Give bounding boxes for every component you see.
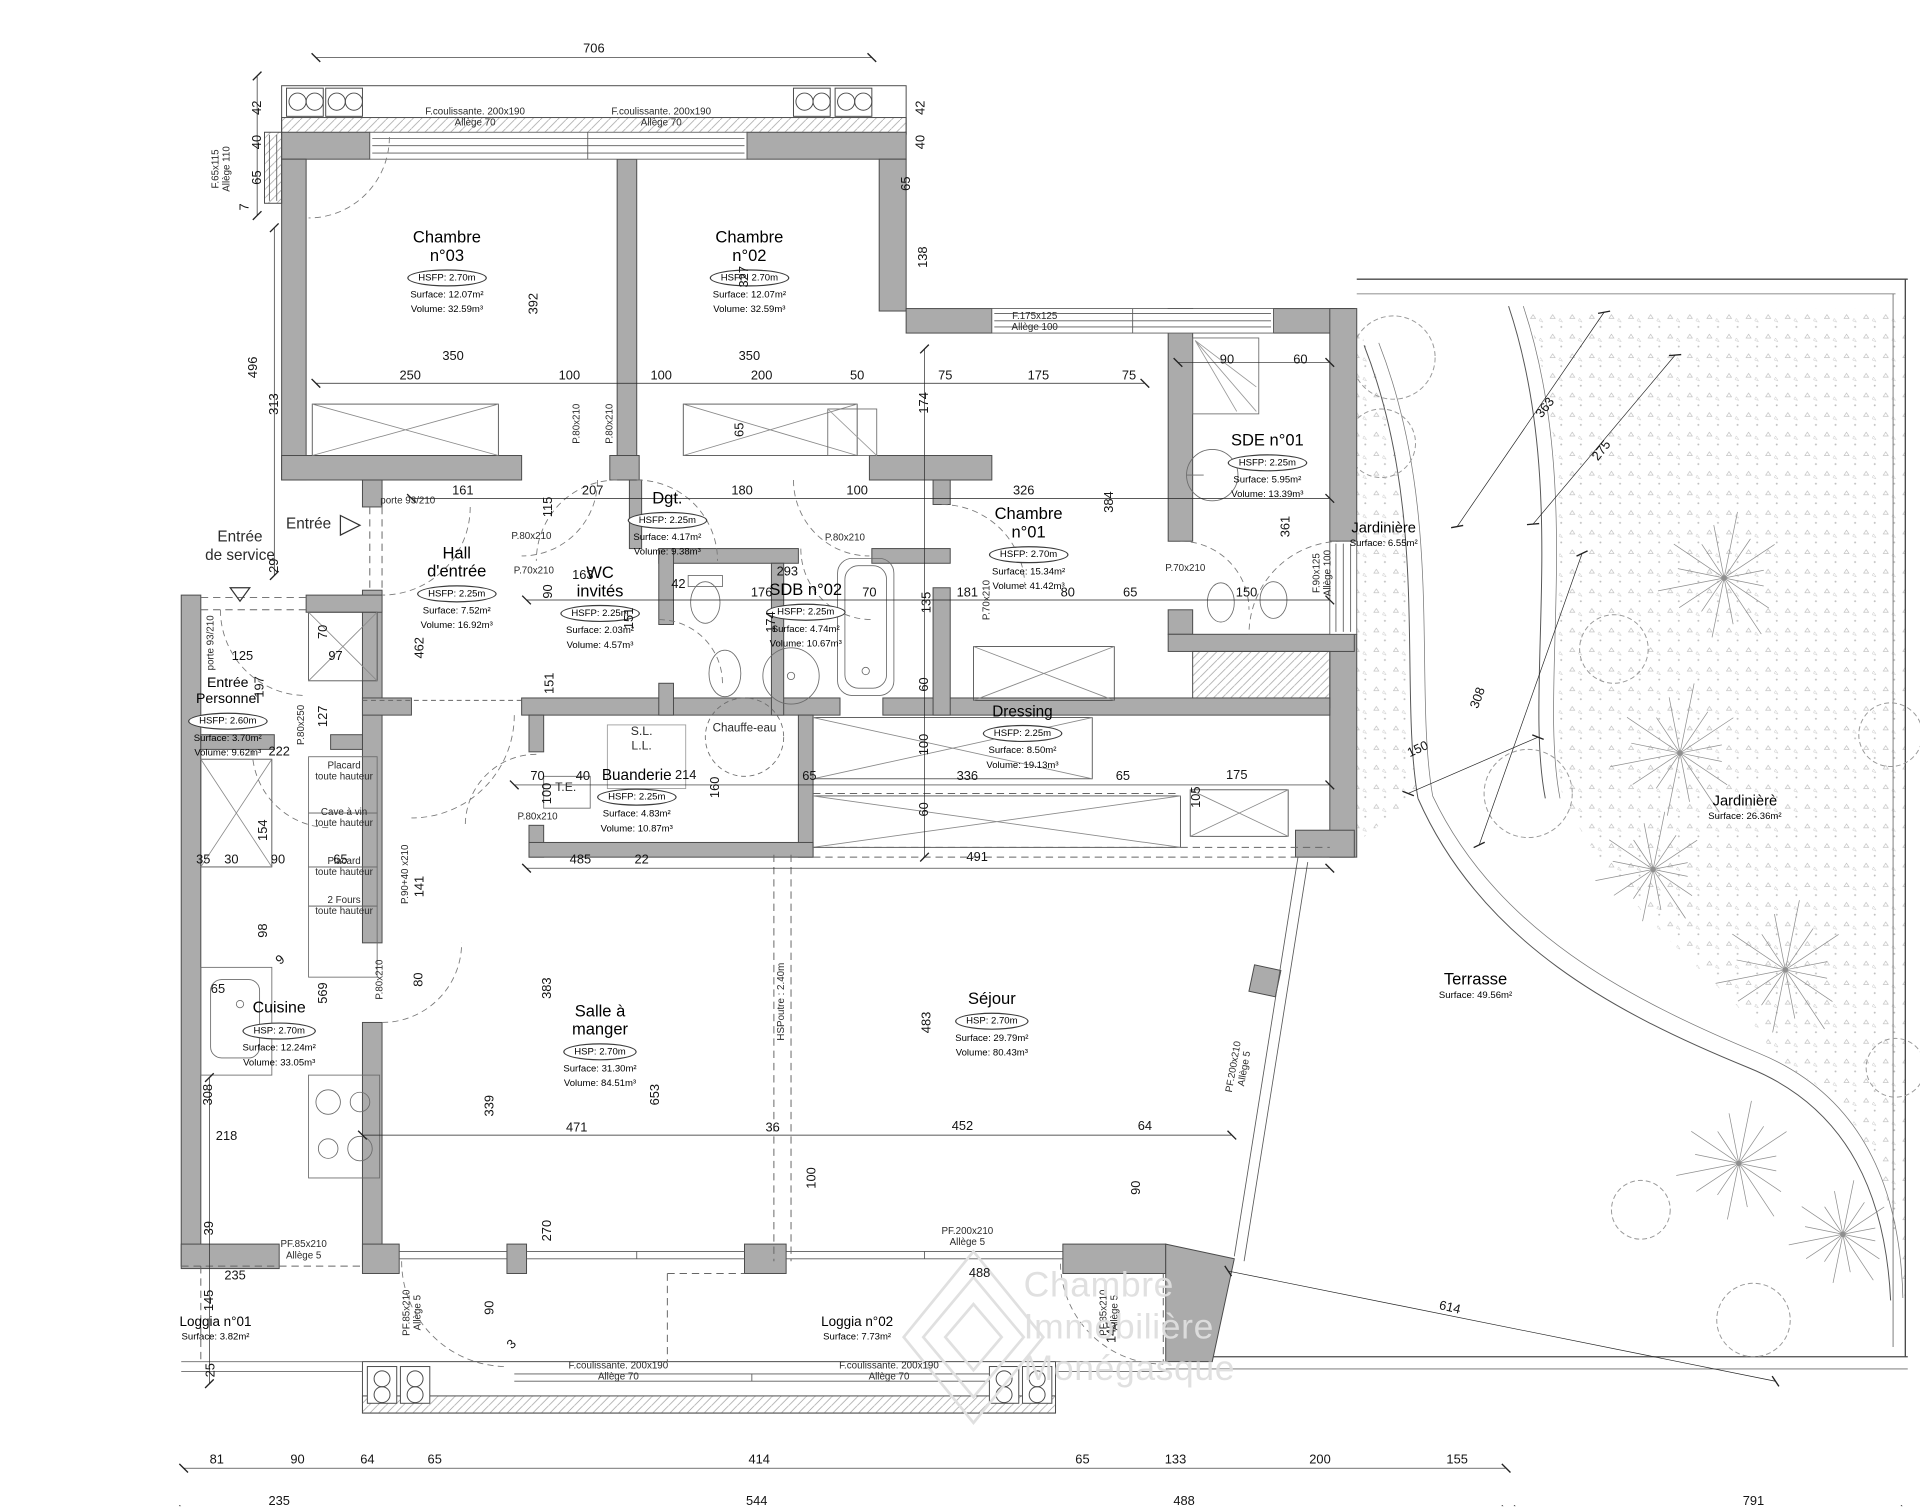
dimension-label: 706 — [583, 42, 604, 57]
room-label: CuisineHSP: 2.70mSurface: 12.24m²Volume:… — [242, 999, 316, 1070]
room-label: JardinièreSurface: 6.55m² — [1350, 520, 1418, 551]
dimension-label: 350 — [442, 349, 463, 364]
room-surface: Surface: 6.55m² — [1350, 537, 1418, 552]
dimension-label: 42 — [250, 101, 265, 115]
annotation-label: PF.85x210 Allège 5 — [401, 1290, 424, 1336]
annotation-label: S.L. L.L. — [631, 725, 653, 754]
dimension-label: 50 — [850, 369, 864, 384]
room-surface: Surface: 15.34m² — [989, 565, 1068, 580]
dimension-label: 150 — [1405, 738, 1431, 760]
watermark: Chambre Immobilière Monégasque — [1024, 1266, 1235, 1391]
dimension-label: 488 — [1173, 1494, 1194, 1509]
dimension-label: 97 — [328, 649, 342, 664]
dimension-label: 326 — [1013, 484, 1034, 499]
dimension-label: 40 — [250, 135, 265, 149]
dimension-label: 151 — [542, 673, 557, 694]
annotation-label: PF.200x210 Allège 5 — [1223, 1040, 1255, 1095]
room-volume: Volume: 32.59m³ — [710, 303, 789, 318]
dimension-label: 200 — [751, 369, 772, 384]
dimension-label: 100 — [804, 1167, 819, 1188]
room-label: Chambre n°01HSFP: 2.70mSurface: 15.34m²V… — [989, 504, 1068, 594]
dimension-label: 176 — [751, 585, 772, 600]
annotation-label: F.coulissante. 200x190 Allège 70 — [425, 106, 525, 129]
dimension-label: 462 — [413, 637, 428, 658]
dimension-label: 483 — [920, 1012, 935, 1033]
dimension-label: 90 — [541, 584, 556, 598]
annotation-label: HSPoutre : 2.40m — [775, 963, 787, 1041]
watermark-line: Monégasque — [1024, 1349, 1235, 1391]
dimension-label: 127 — [316, 706, 331, 727]
dimension-label: 65 — [1116, 769, 1130, 784]
room-height-badge: HSP: 2.70m — [563, 1044, 637, 1061]
dimension-label: 64 — [1138, 1119, 1152, 1134]
room-label: BuanderieHSFP: 2.25mSurface: 4.83m²Volum… — [597, 767, 676, 837]
dimension-label: 174 — [764, 611, 779, 632]
room-label: Chambre n°03HSFP: 2.70mSurface: 12.07m²V… — [407, 228, 486, 318]
room-name: Salle à manger — [563, 1002, 637, 1039]
room-surface: Surface: 4.83m² — [597, 807, 676, 822]
room-surface: Surface: 8.50m² — [983, 743, 1062, 758]
dimension-label: 175 — [1028, 369, 1049, 384]
dimension-label: 65 — [802, 769, 816, 784]
dimension-label: 174 — [917, 392, 932, 413]
dimension-label: 235 — [224, 1269, 245, 1284]
dimension-label: 100 — [650, 369, 671, 384]
dimension-label: 141 — [413, 876, 428, 897]
dimension-label: 98 — [256, 923, 271, 937]
room-name: Séjour — [955, 989, 1029, 1008]
dimension-label: 70 — [316, 625, 331, 639]
dimension-label: 81 — [210, 1452, 224, 1467]
dimension-label: 308 — [201, 1084, 216, 1105]
dimension-label: 275 — [1589, 438, 1614, 464]
room-height-badge: HSFP: 2.25m — [983, 725, 1062, 742]
annotation-label: porte 93/210 — [380, 495, 435, 507]
room-surface: Surface: 5.95m² — [1228, 473, 1307, 488]
dimension-label: 222 — [268, 744, 289, 759]
dimension-label: 154 — [256, 819, 271, 840]
room-name: Loggia n°02 — [821, 1315, 893, 1330]
annotation-label: P.90+40 x210 — [400, 845, 412, 904]
dimension-label: 65 — [211, 982, 225, 997]
dimension-label: 653 — [648, 1084, 663, 1105]
room-surface: Surface: 31.30m² — [563, 1062, 637, 1077]
dimension-label: 384 — [1102, 491, 1117, 512]
room-name: Jardinièrè — [1708, 793, 1781, 809]
room-label: Salle à mangerHSP: 2.70mSurface: 31.30m²… — [563, 1002, 637, 1092]
dimension-label: 36 — [766, 1120, 780, 1135]
dimension-label: 569 — [316, 982, 331, 1003]
dimension-label: 138 — [916, 246, 931, 267]
dimension-label: 339 — [482, 1095, 497, 1116]
room-height-badge: HSFP: 2.60m — [188, 712, 267, 729]
dimension-label: 361 — [1278, 516, 1293, 537]
annotation-label: Entrée de service — [205, 528, 275, 564]
dimension-label: 414 — [748, 1452, 769, 1467]
room-label: TerrasseSurface: 49.56m² — [1439, 970, 1512, 1003]
room-volume: Volume: 80.43m³ — [955, 1046, 1029, 1061]
dimension-label: 207 — [582, 484, 603, 499]
labels-layer: Chambre Immobilière Monégasque Chambre n… — [0, 0, 1920, 1506]
dimension-label: 42 — [913, 101, 928, 115]
annotation-label: T.E. — [555, 781, 576, 795]
dimension-label: 383 — [540, 977, 555, 998]
dimension-label: 151 — [622, 608, 637, 629]
dimension-label: 90 — [290, 1452, 304, 1467]
room-height-badge: HSFP: 2.70m — [407, 270, 486, 287]
annotation-label: F.65x115 Allège 110 — [210, 146, 233, 192]
room-volume: Volume: 9.62m³ — [188, 746, 267, 761]
dimension-label: 496 — [246, 357, 261, 378]
watermark-line: Chambre — [1024, 1266, 1235, 1308]
room-surface: Surface: 12.07m² — [710, 288, 789, 303]
room-surface: Surface: 7.73m² — [821, 1330, 893, 1345]
dimension-label: 80 — [1061, 585, 1075, 600]
annotation-label: P.80x210 — [571, 404, 583, 444]
room-volume: Volume: 19.13m³ — [983, 758, 1062, 773]
room-height-badge: HSFP: 2.70m — [989, 546, 1068, 563]
dimension-label: 35 — [196, 852, 210, 867]
room-label: JardinièrèSurface: 26.36m² — [1708, 793, 1781, 824]
dimension-label: 65 — [428, 1452, 442, 1467]
dimension-label: 336 — [957, 769, 978, 784]
room-height-badge: HSFP: 2.25m — [597, 789, 676, 806]
room-label: Loggia n°02Surface: 7.73m² — [821, 1315, 893, 1345]
annotation-label: Placard toute hauteur — [315, 760, 373, 783]
dimension-label: 363 — [1533, 395, 1558, 421]
dimension-label: 145 — [202, 1290, 217, 1311]
dimension-label: 100 — [540, 783, 555, 804]
dimension-label: 125 — [232, 649, 253, 664]
dimension-label: 308 — [1467, 685, 1488, 710]
room-volume: Volume: 9.38m³ — [628, 545, 707, 560]
dimension-label: 40 — [913, 135, 928, 149]
watermark-line: Immobilière — [1024, 1308, 1235, 1350]
dimension-label: 135 — [920, 592, 935, 613]
dimension-label: 327 — [737, 266, 752, 287]
room-label: Hall d'entréeHSFP: 2.25mSurface: 7.52m²V… — [417, 544, 496, 634]
room-volume: Volume: 84.51m³ — [563, 1077, 637, 1092]
annotation-label: P.80x210 — [511, 531, 551, 543]
dimension-label: 133 — [1165, 1452, 1186, 1467]
dimension-label: 155 — [1446, 1452, 1467, 1467]
annotation-label: P.80x210 — [604, 404, 616, 444]
dimension-label: 160 — [708, 777, 723, 798]
room-volume: Volume: 32.59m³ — [407, 303, 486, 318]
dimension-label: 64 — [360, 1452, 374, 1467]
dimension-label: 90 — [1220, 353, 1234, 368]
floor-plan-sheet: Chambre Immobilière Monégasque Chambre n… — [0, 0, 1920, 1506]
dimension-label: 75 — [1122, 369, 1136, 384]
dimension-label: 9 — [273, 952, 288, 968]
dimension-label: 614 — [1438, 1298, 1462, 1317]
dimension-label: 163 — [572, 568, 593, 583]
dimension-label: 100 — [846, 484, 867, 499]
room-name: Buanderie — [597, 767, 676, 784]
dimension-label: 181 — [957, 585, 978, 600]
dimension-label: 40 — [576, 769, 590, 784]
annotation-label: F.90x125 Allège 100 — [1311, 550, 1334, 596]
annotation-label: PF.85x210 Allège 5 — [281, 1239, 327, 1262]
dimension-label: 150 — [1236, 585, 1257, 600]
dimension-label: 105 — [1189, 786, 1204, 807]
room-volume: Volume: 10.87m³ — [597, 822, 676, 837]
annotation-label: F.coulissante. 200x190 Allège 70 — [839, 1360, 939, 1383]
dimension-label: 65 — [1075, 1452, 1089, 1467]
dimension-label: 90 — [482, 1301, 497, 1315]
dimension-label: 60 — [917, 802, 932, 816]
room-label: Loggia n°01Surface: 3.82m² — [179, 1315, 251, 1345]
annotation-label: P.80x210 — [374, 960, 386, 1000]
room-surface: Surface: 3.82m² — [179, 1330, 251, 1345]
dimension-label: 42 — [671, 577, 685, 592]
room-name: Chambre n°03 — [407, 228, 486, 265]
room-volume: Volume: 41.42m³ — [989, 580, 1068, 595]
annotation-label: P.70x210 — [514, 565, 554, 577]
room-label: DressingHSFP: 2.25mSurface: 8.50m²Volume… — [983, 703, 1062, 773]
dimension-label: 65 — [250, 170, 265, 184]
dimension-label: 75 — [938, 369, 952, 384]
room-surface: Surface: 3.70m² — [188, 731, 267, 746]
room-volume: Volume: 33.05m³ — [242, 1055, 316, 1070]
annotation-label: P.70x210 — [981, 580, 993, 620]
dimension-label: 7 — [238, 203, 253, 210]
dimension-label: 293 — [777, 564, 798, 579]
dimension-label: 22 — [634, 852, 648, 867]
annotation-label: Chauffe-eau — [713, 722, 777, 736]
annotation-label: P.80x210 — [517, 811, 557, 823]
dimension-label: 488 — [969, 1266, 990, 1281]
dimension-label: 90 — [1129, 1181, 1144, 1195]
dimension-label: 100 — [917, 734, 932, 755]
dimension-label: 90 — [271, 852, 285, 867]
room-name: SDB n°02 — [766, 580, 845, 599]
room-volume: Volume: 16.92m³ — [417, 619, 496, 634]
dimension-label: 791 — [1743, 1494, 1764, 1509]
room-name: Dressing — [983, 703, 1062, 720]
room-height-badge: HSP: 2.70m — [955, 1013, 1029, 1030]
dimension-label: 250 — [399, 369, 420, 384]
dimension-label: 100 — [559, 369, 580, 384]
room-height-badge: HSP: 2.70m — [242, 1022, 316, 1039]
dimension-label: 392 — [527, 293, 542, 314]
dimension-label: 65 — [1123, 585, 1137, 600]
annotation-label: F.coulissante. 200x190 Allège 70 — [611, 106, 711, 129]
room-name: Cuisine — [242, 999, 316, 1017]
room-height-badge: HSFP: 2.25m — [1228, 454, 1307, 471]
dimension-label: 452 — [952, 1119, 973, 1134]
room-name: SDE n°01 — [1228, 431, 1307, 450]
annotation-label: porte 93/210 — [205, 615, 217, 670]
room-volume: Volume: 13.39m³ — [1228, 488, 1307, 503]
room-volume: Volume: 4.57m³ — [560, 638, 639, 653]
room-name: Hall d'entrée — [417, 544, 496, 581]
room-name: Chambre n°02 — [710, 228, 789, 265]
room-volume: Volume: 10.67m³ — [766, 637, 845, 652]
dimension-label: 175 — [1226, 768, 1247, 783]
dimension-label: 491 — [966, 850, 987, 865]
annotation-label: 2 Fours toute hauteur — [315, 895, 373, 918]
dimension-label: 25 — [203, 1363, 218, 1377]
dimension-label: 180 — [731, 484, 752, 499]
room-name: Dgt. — [628, 489, 707, 508]
room-surface: Surface: 29.79m² — [955, 1031, 1029, 1046]
dimension-label: 214 — [675, 768, 696, 783]
dimension-label: 60 — [917, 677, 932, 691]
annotation-label: Placard toute hauteur — [315, 855, 373, 878]
annotation-label: PF.200x210 Allège 5 — [941, 1225, 993, 1248]
room-name: Chambre n°01 — [989, 504, 1068, 541]
room-height-badge: HSFP: 2.25m — [417, 586, 496, 603]
dimension-label: 544 — [746, 1494, 767, 1509]
room-surface: Surface: 26.36m² — [1708, 810, 1781, 825]
dimension-label: 350 — [739, 349, 760, 364]
room-surface: Surface: 4.17m² — [628, 530, 707, 545]
dimension-label: 270 — [540, 1220, 555, 1241]
dimension-label: 218 — [216, 1129, 237, 1144]
room-label: Dgt.HSFP: 2.25mSurface: 4.17m²Volume: 9.… — [628, 489, 707, 560]
room-label: SDE n°01HSFP: 2.25mSurface: 5.95m²Volume… — [1228, 431, 1307, 502]
annotation-label: F.coulissante. 200x190 Allège 70 — [569, 1360, 669, 1383]
dimension-label: 197 — [252, 676, 267, 697]
room-surface: Surface: 12.07m² — [407, 288, 486, 303]
room-name: Terrasse — [1439, 970, 1512, 989]
annotation-label: Cave à vin toute hauteur — [315, 806, 373, 829]
dimension-label: 80 — [411, 972, 426, 986]
annotation-label: P.80x210 — [825, 532, 865, 544]
room-height-badge: HSFP: 2.25m — [628, 512, 707, 529]
dimension-label: 313 — [267, 393, 282, 414]
annotation-label: F.175x125 Allège 100 — [1012, 310, 1058, 333]
room-surface: Surface: 49.56m² — [1439, 988, 1512, 1003]
dimension-label: 60 — [1293, 353, 1307, 368]
room-name: Loggia n°01 — [179, 1315, 251, 1330]
dimension-label: 30 — [224, 852, 238, 867]
dimension-label: 115 — [541, 497, 556, 518]
dimension-label: 3 — [504, 1337, 519, 1352]
dimension-label: 161 — [452, 484, 473, 499]
dimension-label: 471 — [566, 1120, 587, 1135]
annotation-label: P.80x250 — [295, 705, 307, 745]
dimension-label: 70 — [862, 585, 876, 600]
dimension-label: 485 — [570, 852, 591, 867]
dimension-label: 65 — [899, 177, 914, 191]
dimension-label: 200 — [1309, 1452, 1330, 1467]
dimension-label: 235 — [268, 1494, 289, 1509]
dimension-label: 65 — [732, 423, 747, 437]
room-surface: Surface: 12.24m² — [242, 1040, 316, 1055]
room-surface: Surface: 7.52m² — [417, 604, 496, 619]
room-name: Jardinière — [1350, 520, 1418, 536]
annotation-label: Entrée — [286, 515, 331, 533]
dimension-label: 39 — [202, 1221, 217, 1235]
room-label: SéjourHSP: 2.70mSurface: 29.79m²Volume: … — [955, 989, 1029, 1060]
annotation-label: P.70x210 — [1165, 562, 1205, 574]
